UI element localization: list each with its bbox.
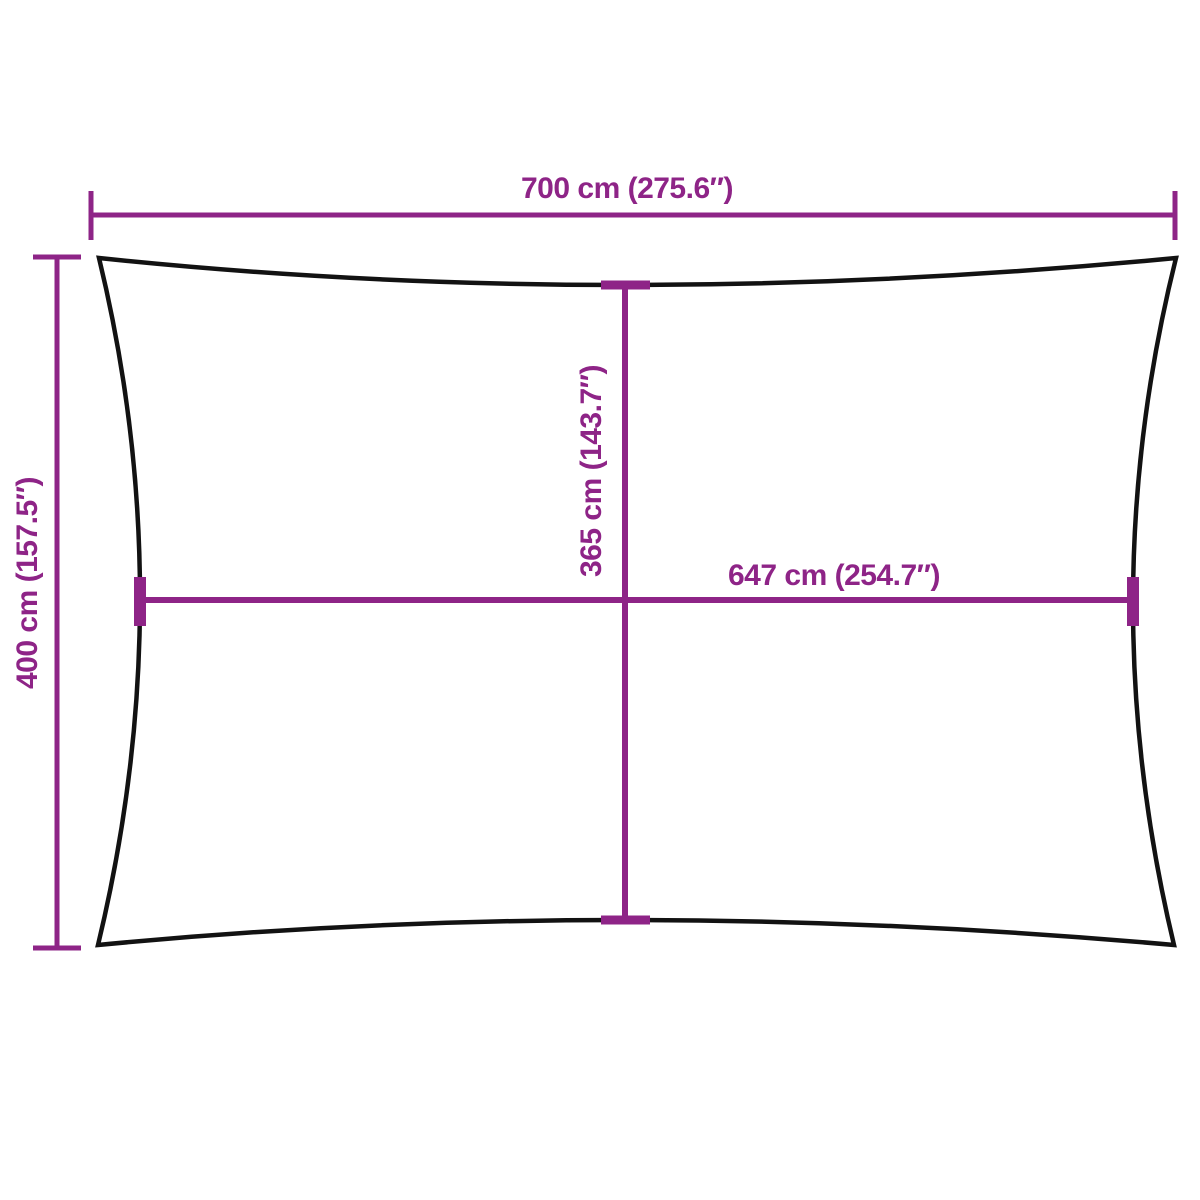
dim-center-width bbox=[140, 577, 1133, 626]
dim-label-center-width: 647 cm (254.7″) bbox=[728, 561, 940, 591]
dim-label-left-height: 400 cm (157.5″) bbox=[13, 477, 43, 689]
product-dimension-diagram: 700 cm (275.6″) 400 cm (157.5″) 365 cm (… bbox=[0, 0, 1200, 1200]
dim-label-center-height: 365 cm (143.7″) bbox=[577, 365, 607, 577]
dim-label-top-width: 700 cm (275.6″) bbox=[521, 174, 733, 204]
